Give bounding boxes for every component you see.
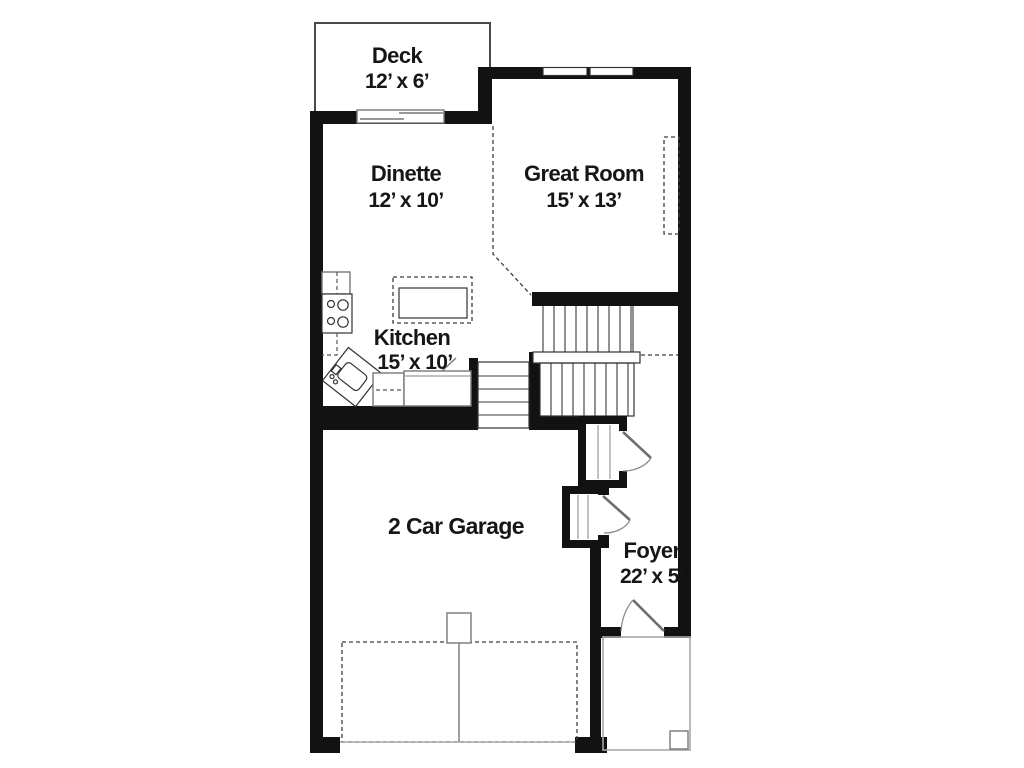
patio-sliding-door: [357, 110, 444, 123]
dinette-label: Dinette: [371, 161, 442, 186]
kitchen-label: Kitchen: [374, 325, 451, 350]
range-icon: [322, 294, 352, 333]
great-room-window-left: [543, 68, 587, 76]
garage-front-left-stub: [310, 737, 340, 753]
basement-stairs: [478, 362, 529, 428]
front-entry: [621, 600, 664, 631]
garage-features: [340, 613, 577, 742]
island-icon: [399, 288, 467, 318]
garage-label: 2 Car Garage: [388, 513, 524, 539]
foyer-dims: 22’ x 5’: [620, 565, 684, 588]
basement-stair-treads: [478, 376, 529, 415]
left-wall: [310, 111, 323, 753]
stairs-upper-edge: [533, 306, 634, 352]
foyer-closet-interior: [570, 494, 598, 540]
front-door-arc: [621, 600, 633, 631]
coat-closet-door-arc: [623, 458, 651, 471]
great-room-dims: 15’ x 13’: [546, 189, 621, 212]
stairs-upper-treads: [543, 306, 631, 352]
coat-closet-interior: [586, 424, 619, 480]
staircase: [478, 306, 640, 428]
kitchen-garage-wall: [310, 406, 478, 430]
counter-upper: [322, 272, 350, 294]
front-door: [633, 600, 664, 631]
porch-post: [670, 731, 688, 749]
great-room-bottom-wall: [532, 292, 691, 306]
coat-closet: [578, 416, 651, 488]
counter-lower-left-dash: [322, 333, 337, 355]
great-room-window-right: [590, 68, 633, 76]
deck-dims: 12’ x 6’: [365, 70, 429, 93]
deck-label: Deck: [372, 43, 424, 68]
kitchen-dims: 15’ x 10’: [377, 351, 452, 374]
great-room-niche: [664, 137, 679, 234]
coat-closet-door: [623, 432, 651, 458]
stairs-landing: [533, 352, 640, 363]
great-room-label: Great Room: [524, 161, 644, 186]
foyer-closet: [562, 486, 630, 548]
stairs-lower-run: [540, 363, 634, 416]
dinette-great-room-divider: [493, 126, 531, 295]
floor-plan-canvas: Deck 12’ x 6’ Dinette 12’ x 10’ Great Ro…: [0, 0, 1024, 768]
stairs-lower-treads: [551, 363, 628, 416]
porch: [603, 637, 690, 750]
foyer-label: Foyer: [624, 538, 682, 563]
dinette-dims: 12’ x 10’: [368, 189, 443, 212]
garage-door-post: [447, 613, 471, 643]
coat-closet-opening: [619, 431, 627, 471]
